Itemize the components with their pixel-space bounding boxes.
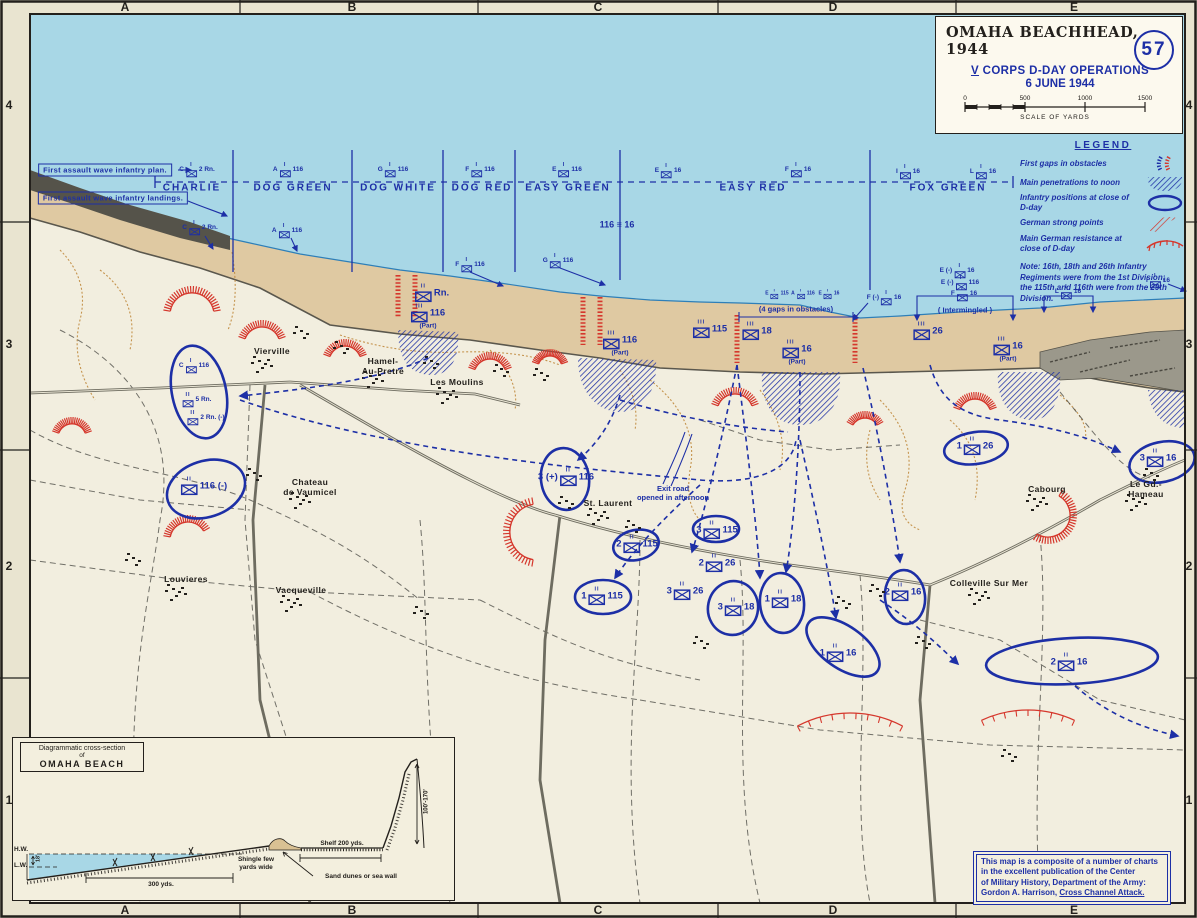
unit-marker: EI16 — [819, 289, 840, 300]
scale-tick-label: 500 — [1020, 95, 1031, 102]
town-label: Colleville Sur Mer — [950, 579, 1029, 589]
infantry-flag-icon — [588, 594, 605, 605]
unit-parent-label: A — [791, 292, 795, 297]
beach-sector-label: DOG WHITE — [360, 183, 436, 194]
scale-tick-label: 1000 — [1078, 95, 1093, 102]
unit-parent-label: F (-) — [867, 295, 879, 302]
infantry-flag-icon — [183, 399, 194, 407]
unit-number-label: 16 — [970, 291, 977, 298]
beach-width-label: 300 yds. — [137, 881, 185, 889]
unit-number-label: 116 (-) — [200, 481, 227, 491]
unit-number-label: 26 — [725, 558, 736, 568]
landings-label: First assault wave infantry landings. — [38, 192, 188, 205]
unit-number-label: 116 — [484, 167, 495, 174]
echelon-label: II — [970, 437, 975, 443]
grid-letter-bottom: C — [594, 903, 603, 917]
grid-letter-top: D — [829, 0, 838, 14]
infantry-flag-icon — [881, 297, 892, 305]
unit-parent-label: A — [272, 228, 277, 235]
unit-number-label: 116 — [807, 292, 815, 297]
echelon-label: II — [712, 554, 717, 560]
unit-number-label: 116 — [398, 167, 409, 174]
grid-letter-bottom: E — [1070, 903, 1078, 917]
legend-item: Main penetrations to noon — [1020, 174, 1186, 192]
town-label: Hamel- Au-Pretre — [362, 357, 404, 377]
gaps-label: (4 gaps in obstacles) — [759, 305, 833, 314]
unit-marker: EI16 — [655, 164, 682, 179]
unit-marker: AI116 — [273, 163, 303, 178]
unit-number-label: 116 — [563, 258, 574, 265]
legend-item: Infantry positions at close of D-day — [1020, 193, 1186, 212]
unit-number-label: 16 — [989, 169, 996, 176]
unit-marker: IIRn. — [415, 284, 449, 302]
infantry-flag-icon — [993, 344, 1010, 355]
unit-parent-label: F — [465, 167, 469, 174]
beach-sector-label: FOX GREEN — [910, 183, 987, 194]
unit-parent-label: E — [819, 292, 822, 297]
infantry-flag-icon — [742, 329, 759, 340]
grid-letter-bottom: B — [348, 903, 357, 917]
unit-parent-label: E — [552, 167, 556, 174]
grid-number-right: 1 — [1186, 793, 1193, 807]
unit-number-label: 18 — [791, 594, 802, 604]
echelon-label: II — [594, 587, 599, 593]
infantry-flag-icon — [900, 171, 911, 179]
echelon-label: II — [709, 521, 714, 527]
infantry-flag-icon — [461, 264, 472, 272]
infantry-flag-icon — [771, 294, 779, 300]
unit-number-label: 116 — [579, 472, 594, 482]
town-label: Louvieres — [164, 575, 208, 585]
unit-number-label: 16 — [846, 648, 857, 658]
echelon-label: I — [665, 164, 668, 170]
unit-number-label: 18 — [744, 602, 755, 612]
infantry-flag-icon — [186, 169, 197, 177]
unit-marker: 2II16 — [885, 583, 922, 601]
map-subtitle: V CORPS D-DAY OPERATIONS — [946, 65, 1174, 77]
grid-letter-top: A — [121, 0, 130, 14]
source-note: This map is a composite of a number of c… — [973, 851, 1171, 905]
grid-letter-bottom: A — [121, 903, 130, 917]
unit-number-label: 115 — [712, 324, 727, 334]
unit-parent-label: 2 — [885, 587, 890, 597]
echelon-label: III — [998, 338, 1006, 344]
infantry-flag-icon — [725, 605, 742, 616]
town-label: St. Laurent — [584, 499, 633, 509]
beach-sector-label: EASY GREEN — [525, 183, 610, 194]
unit-marker: II116 (-) — [181, 477, 227, 495]
shingle-label: Shingle few yards wide — [235, 856, 277, 872]
unit-marker: II5 Rn. — [183, 393, 212, 408]
unit-marker: 1II16 — [820, 644, 857, 662]
echelon-label: I — [800, 289, 802, 293]
unit-parent-label: 3 — [667, 586, 672, 596]
town-label: Le Gd.- Hameau — [1121, 480, 1172, 500]
unit-number-label: 16 — [1012, 342, 1023, 352]
unit-part-label: (Part) — [612, 350, 629, 357]
unit-marker: EI115 — [765, 289, 788, 300]
infantry-flag-icon — [964, 444, 981, 455]
echelon-label: II — [898, 583, 903, 589]
unit-number-label: 16 — [674, 168, 681, 175]
legend-item-label: German strong points — [1020, 218, 1138, 228]
unit-number-label: 16 — [967, 268, 974, 275]
unit-marker: LI16 — [970, 165, 996, 180]
infantry-flag-icon — [623, 542, 640, 553]
infantry-flag-icon — [415, 291, 432, 302]
echelon-label: I — [958, 264, 961, 270]
town-label: Vacqueville — [276, 586, 327, 596]
unit-number-label: Rn. — [434, 288, 449, 298]
shelf-label: Shelf 200 yds. — [303, 840, 381, 848]
echelon-label: I — [283, 224, 286, 230]
unit-parent-label: A — [273, 167, 278, 174]
unit-parent-label: F — [951, 291, 955, 298]
grid-number-right: 3 — [1186, 337, 1193, 351]
infantry-flag-icon — [186, 365, 197, 373]
echelon-label: I — [563, 163, 566, 169]
unit-parent-label: 2 — [699, 558, 704, 568]
unit-parent-label: E — [655, 168, 659, 175]
legend-item-label: Infantry positions at close of D-day — [1020, 193, 1138, 212]
unit-number-label: 116 — [571, 167, 582, 174]
scale-tick-label: 1500 — [1138, 95, 1153, 102]
infantry-flag-icon — [976, 171, 987, 179]
map-number-badge: 57 — [1134, 30, 1174, 70]
tide-range-label: 18' — [35, 855, 42, 862]
infantry-flag-icon — [550, 260, 561, 268]
cross-section-inset: Diagrammatic cross-section of OMAHA BEAC… — [12, 737, 455, 901]
unit-parent-label: G — [543, 258, 548, 265]
unit-number-label: 16 — [913, 169, 920, 176]
echelon-label: I — [960, 276, 963, 282]
unit-marker: 1II115 — [581, 587, 623, 605]
echelon-label: II — [731, 598, 736, 604]
unit-parent-label: C — [179, 167, 184, 174]
echelon-label: I — [885, 291, 888, 297]
unit-number-label: 115 — [722, 525, 737, 535]
legend-item: Main German resistance at close of D-day — [1020, 234, 1186, 253]
unit-number-label: 116 — [430, 309, 445, 319]
echelon-label: II — [566, 468, 571, 474]
echelon-label: I — [795, 163, 798, 169]
echelon-label: I — [904, 165, 907, 171]
unit-parent-label: 1 — [957, 441, 962, 451]
unit-marker: F (-)I16 — [867, 291, 902, 306]
infantry-flag-icon — [411, 311, 428, 322]
boundary-116-16-label: 116 ≡ 16 — [600, 220, 635, 231]
unit-number-label: 16 — [834, 292, 840, 297]
unit-part-label: (Part) — [1000, 356, 1017, 363]
unit-marker: 2II115 — [616, 535, 658, 553]
legend-item-label: First gaps in obstacles — [1020, 159, 1138, 169]
unit-number-label: 115 — [781, 292, 789, 297]
infantry-flag-icon — [827, 651, 844, 662]
echelon-label: I — [465, 258, 468, 264]
echelon-label: II — [421, 284, 426, 290]
grid-number-left: 2 — [6, 559, 13, 573]
source-note-line: Gordon A. Harrison, Cross Channel Attack… — [981, 888, 1163, 898]
unit-number-label: 5 Rn. — [196, 397, 212, 404]
unit-parent-label: 1 — [581, 591, 586, 601]
infantry-flag-icon — [1058, 660, 1075, 671]
source-note-line: in the excellent publication of the Cent… — [981, 867, 1163, 877]
high-water-label: H.W. — [14, 846, 28, 854]
unit-number-label: 116 — [969, 280, 980, 287]
infantry-flag-icon — [560, 475, 577, 486]
legend-title: LEGEND — [1020, 140, 1186, 151]
unit-number-label: 16 — [911, 587, 922, 597]
scale-caption: SCALE OF YARDS — [1020, 114, 1090, 121]
cross-section-title: Diagrammatic cross-section of OMAHA BEAC… — [20, 742, 144, 772]
infantry-flag-icon — [782, 347, 799, 358]
unit-marker: 1II26 — [957, 437, 994, 455]
infantry-position-icon — [1144, 194, 1186, 212]
infantry-flag-icon — [957, 293, 968, 301]
infantry-flag-icon — [280, 169, 291, 177]
resistance-icon — [1144, 235, 1186, 253]
echelon-label: II — [190, 411, 195, 417]
unit-parent-label: 3 — [1140, 453, 1145, 463]
penetration-icon — [1144, 174, 1186, 192]
corps-numeral: V — [971, 65, 979, 77]
town-label: Chateau de Vaumicel — [283, 478, 337, 498]
unit-marker: 2II16 — [1051, 653, 1088, 671]
unit-number-label: 18 — [761, 326, 772, 336]
gap-icon — [1144, 155, 1186, 173]
unit-parent-label: I — [896, 169, 898, 176]
scale-bar: 050010001500SCALE OF YARDS — [955, 95, 1165, 121]
unit-marker: FI116 — [455, 258, 484, 273]
unit-number-label: 26 — [983, 441, 994, 451]
infantry-flag-icon — [661, 170, 672, 178]
map-date: 6 JUNE 1944 — [946, 78, 1174, 90]
unit-marker: III116(Part) — [603, 332, 637, 357]
strongpoint-icon — [1144, 213, 1186, 233]
unit-marker: 3 (+)II116 — [538, 468, 594, 486]
unit-marker: 1II18 — [765, 590, 802, 608]
unit-marker: FI16 — [785, 163, 811, 178]
unit-number-label: 116 — [622, 336, 637, 346]
infantry-flag-icon — [791, 169, 802, 177]
infantry-flag-icon — [706, 561, 723, 572]
infantry-flag-icon — [772, 597, 789, 608]
legend-item-label: Main penetrations to noon — [1020, 178, 1138, 188]
grid-letter-bottom: D — [829, 903, 838, 917]
unit-marker: CI2 Rn. — [182, 221, 218, 236]
town-label: Cabourg — [1028, 485, 1066, 495]
legend: LEGEND First gaps in obstaclesMain penet… — [1020, 140, 1186, 304]
unit-marker: AI116 — [791, 289, 815, 300]
unit-parent-label: 3 — [718, 602, 723, 612]
unit-number-label: 16 — [804, 167, 811, 174]
low-water-label: L.W. — [14, 862, 27, 870]
unit-marker: GI116 — [378, 163, 409, 178]
unit-parent-label: E (-) — [940, 268, 953, 275]
unit-number-label: 16 — [1077, 657, 1088, 667]
unit-marker: III16(Part) — [782, 341, 812, 366]
echelon-label: II — [186, 393, 191, 399]
echelon-label: I — [193, 221, 196, 227]
unit-number-label: 115 — [607, 591, 622, 601]
echelon-label: I — [980, 165, 983, 171]
unit-number-label: 16 — [801, 345, 812, 355]
unit-number-label: 116 — [293, 167, 304, 174]
unit-marker: 2II26 — [699, 554, 736, 572]
unit-marker: III18 — [742, 322, 772, 340]
cliff-height-label: 100'-170' — [423, 782, 430, 822]
unit-number-label: 2 Rn. (-) — [200, 415, 224, 422]
unit-marker: 3II26 — [667, 582, 704, 600]
unit-parent-label: 2 — [616, 539, 621, 549]
infantry-flag-icon — [797, 294, 805, 300]
unit-parent-label: F — [785, 167, 789, 174]
unit-parent-label: 1 — [765, 594, 770, 604]
unit-part-label: (Part) — [789, 359, 806, 366]
title-box: OMAHA BEACHHEAD, 1944 57 V CORPS D-DAY O… — [935, 16, 1183, 134]
unit-parent-label: F — [455, 262, 459, 269]
scale-tick-label: 0 — [963, 95, 967, 102]
unit-parent-label: G — [378, 167, 383, 174]
unit-parent-label: E (-) — [941, 280, 954, 287]
exit-road-label: Exit road opened in afternoon — [637, 484, 709, 502]
infantry-flag-icon — [674, 589, 691, 600]
unit-marker: II2 Rn. (-) — [187, 411, 224, 426]
echelon-label: II — [680, 582, 685, 588]
town-label: Les Moulins — [430, 378, 484, 388]
unit-marker: AI116 — [272, 224, 302, 239]
echelon-label: II — [1064, 653, 1069, 659]
unit-number-label: 16 — [1166, 453, 1177, 463]
echelon-label: I — [389, 163, 392, 169]
infantry-flag-icon — [558, 169, 569, 177]
infantry-flag-icon — [385, 169, 396, 177]
grid-number-left: 4 — [6, 98, 13, 112]
book-title: Cross Channel Attack. — [1059, 888, 1144, 897]
infantry-flag-icon — [892, 590, 909, 601]
echelon-label: I — [284, 163, 287, 169]
infantry-flag-icon — [693, 327, 710, 338]
unit-marker: CI2 Rn. — [179, 163, 215, 178]
unit-number-label: 26 — [693, 586, 704, 596]
unit-marker: GI116 — [543, 254, 574, 269]
unit-parent-label: 2 — [1051, 657, 1056, 667]
infantry-flag-icon — [279, 230, 290, 238]
unit-marker: III116(Part) — [411, 305, 445, 330]
echelon-label: I — [827, 289, 829, 293]
beach-sector-label: DOG RED — [452, 183, 513, 194]
unit-parent-label: 3 — [696, 525, 701, 535]
unit-marker: III26 — [913, 322, 943, 340]
unit-marker: III16(Part) — [993, 338, 1023, 363]
echelon-label: III — [416, 305, 424, 311]
echelon-label: III — [918, 322, 926, 328]
unit-number-label: 116 — [292, 228, 303, 235]
echelon-label: I — [554, 254, 557, 260]
infantry-flag-icon — [189, 227, 200, 235]
unit-parent-label: 1 — [820, 648, 825, 658]
echelon-label: III — [698, 320, 706, 326]
intermingled-label: ( Intermingled ) — [938, 306, 992, 315]
unit-marker: EI116 — [552, 163, 582, 178]
echelon-label: III — [747, 322, 755, 328]
infantry-flag-icon — [824, 294, 832, 300]
echelon-label: II — [629, 535, 634, 541]
unit-marker: III115 — [693, 320, 727, 338]
omaha-beachhead-map: First assault wave infantry plan. First … — [0, 0, 1197, 918]
echelon-label: I — [190, 359, 193, 365]
echelon-label: III — [608, 332, 616, 338]
source-note-line: of Military History, Department of the A… — [981, 878, 1163, 888]
grid-letter-top: C — [594, 0, 603, 14]
unit-marker: FI16 — [951, 287, 977, 302]
legend-note: Note: 16th, 18th and 26th Infantry Regim… — [1020, 262, 1170, 304]
grid-letter-top: B — [348, 0, 357, 14]
unit-parent-label: 3 (+) — [538, 472, 558, 482]
unit-parent-label: C — [182, 225, 187, 232]
infantry-flag-icon — [187, 417, 198, 425]
dunes-label: Sand dunes or sea wall — [316, 873, 406, 881]
echelon-label: II — [778, 590, 783, 596]
infantry-flag-icon — [913, 329, 930, 340]
grid-number-left: 3 — [6, 337, 13, 351]
grid-number-right: 4 — [1186, 98, 1193, 112]
unit-parent-label: E — [765, 292, 768, 297]
unit-number-label: 115 — [642, 539, 657, 549]
corps-text: CORPS D-DAY OPERATIONS — [979, 65, 1149, 77]
echelon-label: II — [833, 644, 838, 650]
echelon-label: II — [187, 477, 192, 483]
town-label: Vierville — [254, 347, 290, 357]
beach-sector-label: EASY RED — [720, 183, 787, 194]
unit-parent-label: L — [970, 169, 974, 176]
unit-number-label: 16 — [894, 295, 901, 302]
echelon-label: III — [787, 341, 795, 347]
infantry-flag-icon — [603, 338, 620, 349]
legend-item: German strong points — [1020, 213, 1186, 233]
grid-number-right: 2 — [1186, 559, 1193, 573]
source-note-line: This map is a composite of a number of c… — [981, 857, 1163, 867]
echelon-label: II — [1153, 449, 1158, 455]
grid-letter-top: E — [1070, 0, 1078, 14]
unit-parent-label: C — [179, 363, 184, 370]
unit-marker: CI116 — [179, 359, 209, 374]
unit-number-label: 116 — [474, 262, 485, 269]
legend-item-label: Main German resistance at close of D-day — [1020, 234, 1138, 253]
unit-marker: II16 — [896, 165, 920, 180]
beach-sector-label: DOG GREEN — [253, 183, 332, 194]
unit-marker: 3II16 — [1140, 449, 1177, 467]
echelon-label: I — [961, 287, 964, 293]
unit-number-label: 2 Rn. — [199, 167, 215, 174]
infantry-flag-icon — [703, 528, 720, 539]
unit-number-label: 116 — [199, 363, 210, 370]
infantry-flag-icon — [471, 169, 482, 177]
legend-item: First gaps in obstacles — [1020, 155, 1186, 173]
echelon-label: I — [475, 163, 478, 169]
unit-part-label: (Part) — [420, 323, 437, 330]
unit-marker: 3II18 — [718, 598, 755, 616]
unit-marker: FI116 — [465, 163, 494, 178]
plan-label: First assault wave infantry plan. — [38, 164, 172, 177]
unit-number-label: 26 — [932, 326, 943, 336]
echelon-label: I — [774, 289, 776, 293]
unit-number-label: 2 Rn. — [202, 225, 218, 232]
infantry-flag-icon — [1147, 456, 1164, 467]
infantry-flag-icon — [181, 484, 198, 495]
unit-marker: 3II115 — [696, 521, 738, 539]
echelon-label: I — [190, 163, 193, 169]
